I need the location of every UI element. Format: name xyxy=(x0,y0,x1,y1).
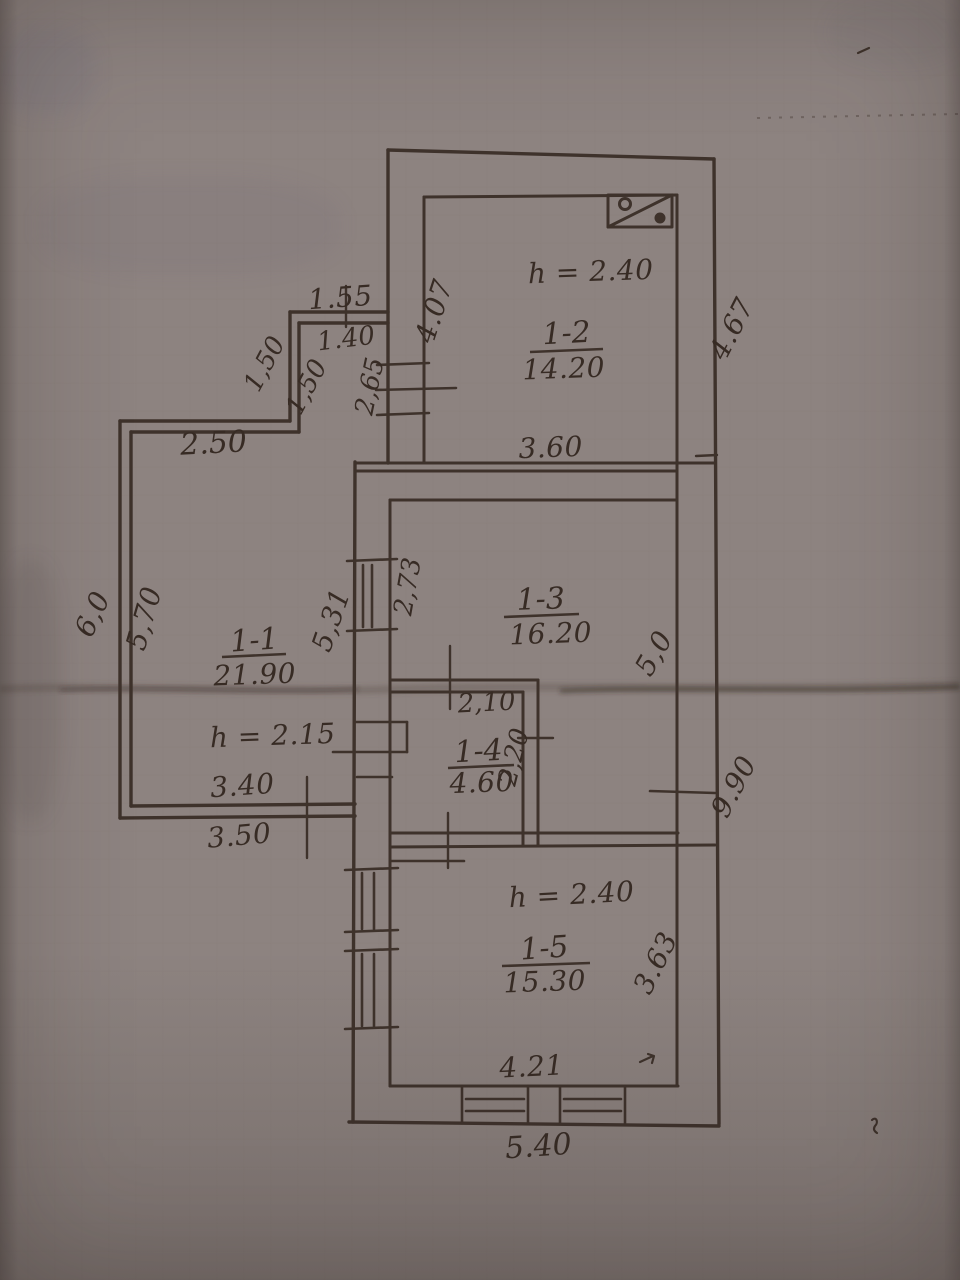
dim-porch-top-inner: 1.40 xyxy=(315,321,376,358)
room-label-1-2: 1-2 14.20 xyxy=(522,315,606,387)
dim-room-1-1-right: 5,31 xyxy=(305,584,357,656)
room-area: 16.20 xyxy=(509,616,593,652)
dim-porch-top: 1.55 xyxy=(307,279,373,316)
dim-left-inner: 5,70 xyxy=(119,583,168,654)
height-note-room-1-5: h = 2.40 xyxy=(508,875,635,915)
scanned-floor-plan-page: 1-2 14.20 1-3 16.20 1-4 4.60 1-5 15.30 1… xyxy=(0,0,960,1280)
dim-left-outer: 6,0 xyxy=(68,586,117,642)
room-area: 21.90 xyxy=(212,657,297,693)
dim-room-1-1-bottom-inner: 3.40 xyxy=(209,767,275,804)
dim-room-1-4-top: 2,10 xyxy=(456,687,516,720)
dim-right-lower: 9.90 xyxy=(704,750,763,822)
faint-dotted-line xyxy=(757,114,958,118)
stove-icon xyxy=(608,195,672,227)
height-note-room-1-1: h = 2.15 xyxy=(209,717,336,754)
bottom-shadow xyxy=(0,950,960,1280)
dim-room-1-2-bottom: 3.60 xyxy=(518,430,583,465)
dim-left-top: 2.50 xyxy=(178,424,248,463)
right-edge-shadow xyxy=(944,0,960,1280)
room-label-1-3: 1-3 16.20 xyxy=(504,581,593,651)
dim-window-1-3-left: 2,73 xyxy=(388,556,428,619)
left-edge-shadow xyxy=(0,0,18,1280)
dim-porch-side-inner: 1,50 xyxy=(280,355,334,420)
dim-room-1-1-bottom-outer: 3.50 xyxy=(206,816,273,854)
room-area: 14.20 xyxy=(522,351,606,387)
height-note-room-1-2: h = 2.40 xyxy=(527,253,654,290)
dim-window-1-2-left: 2,65 xyxy=(349,355,391,419)
dim-room-1-2-left: 4.07 xyxy=(408,275,460,347)
dim-porch-side-outer: 1,50 xyxy=(238,332,292,397)
room-number: 1-2 xyxy=(541,315,591,352)
room-number: 1-3 xyxy=(516,581,566,618)
dim-room-1-3-right: 5,0 xyxy=(628,625,680,681)
room-label-1-1: 1-1 21.90 xyxy=(212,621,297,692)
dim-right-upper: 4.67 xyxy=(702,293,761,366)
